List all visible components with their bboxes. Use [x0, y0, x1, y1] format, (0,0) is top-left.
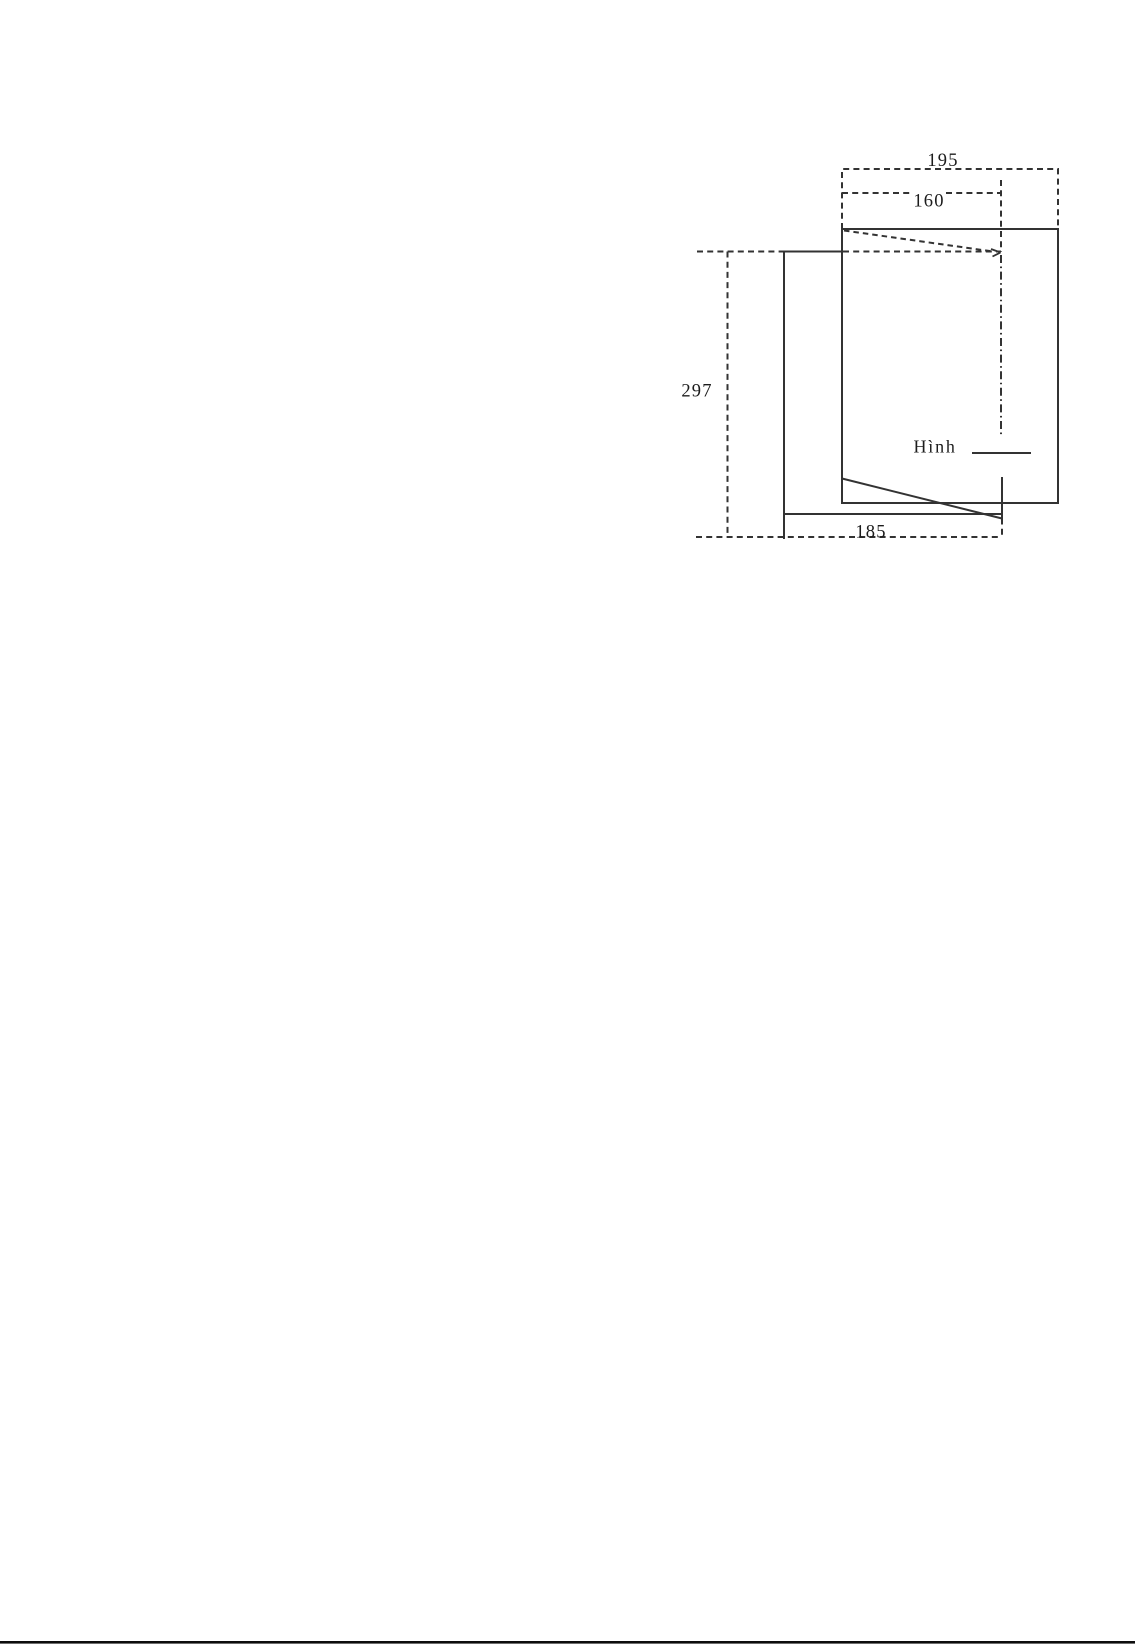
svg-text:160: 160 [913, 192, 944, 212]
svg-text:185: 185 [855, 523, 886, 543]
svg-text:297: 297 [681, 382, 712, 402]
svg-text:195: 195 [927, 151, 958, 171]
svg-text:Hình: Hình [914, 437, 957, 457]
